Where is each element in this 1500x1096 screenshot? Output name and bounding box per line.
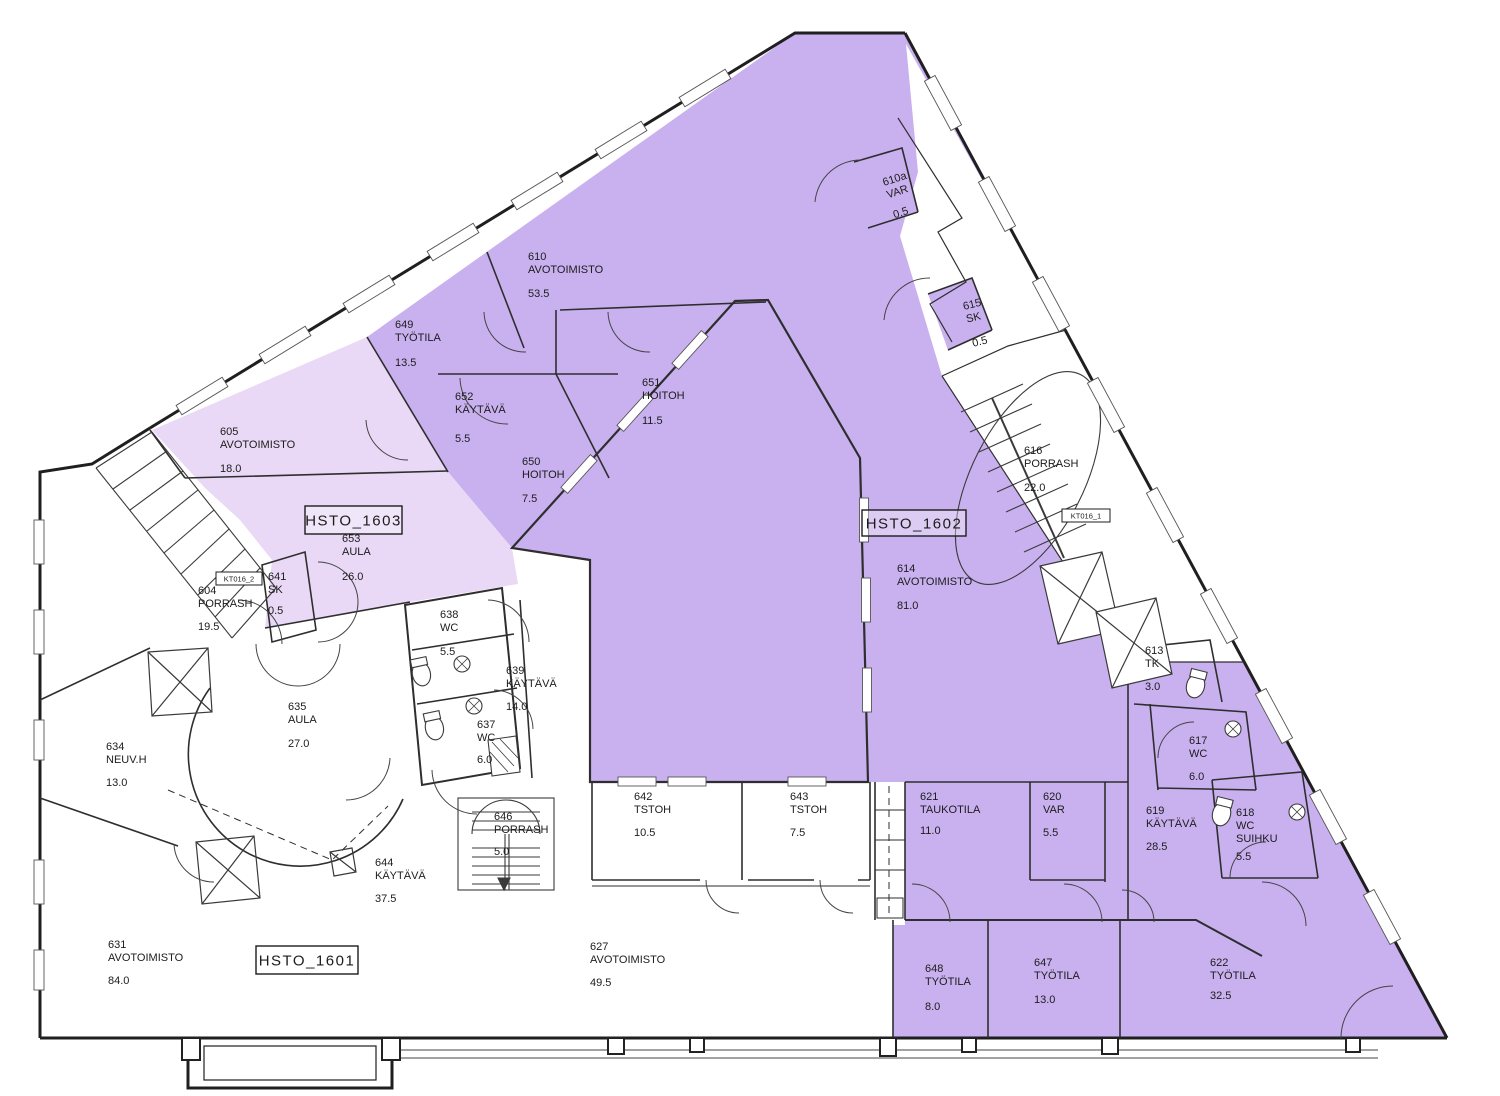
room-number: 618 bbox=[1236, 807, 1254, 819]
room-number: 648 bbox=[925, 963, 943, 975]
room-area: 5.5 bbox=[1043, 827, 1058, 839]
room-number: 635 bbox=[288, 701, 306, 713]
floor-plan-page: 610aVAR0.5610AVOTOIMISTO53.5649TYÖTILA13… bbox=[0, 0, 1500, 1096]
toilet-icon bbox=[422, 710, 445, 741]
room-number: 639 bbox=[506, 665, 524, 677]
room-name: WC bbox=[440, 622, 458, 634]
zone-tag-hsto_1602: HSTO_1602 bbox=[862, 510, 966, 536]
room-area: 5.0 bbox=[494, 846, 509, 858]
room-name: KÄYTÄVÄ bbox=[375, 870, 426, 882]
room-name: TSTOH bbox=[790, 804, 827, 816]
room-number: 638 bbox=[440, 609, 458, 621]
room-label-639: 639KÄYTÄVÄ14.0 bbox=[506, 665, 557, 713]
room-area: 3.0 bbox=[1145, 681, 1160, 693]
room-area: 11.0 bbox=[920, 825, 941, 837]
room-area: 7.5 bbox=[790, 827, 805, 839]
sink-icon bbox=[1225, 721, 1241, 737]
room-name: VAR bbox=[1043, 804, 1065, 816]
room-area: 32.5 bbox=[1210, 990, 1231, 1002]
room-name: NEUV.H bbox=[106, 754, 147, 766]
room-area: 7.5 bbox=[522, 493, 537, 505]
room-number: 652 bbox=[455, 391, 473, 403]
room-number: 620 bbox=[1043, 791, 1061, 803]
room-name: PORRASH bbox=[198, 598, 252, 610]
room-name: WC bbox=[1189, 748, 1207, 760]
room-area: 5.5 bbox=[1236, 851, 1251, 863]
zone-tag-label: HSTO_1601 bbox=[259, 953, 356, 970]
room-label-643: 643TSTOH7.5 bbox=[790, 791, 827, 839]
sink-icon bbox=[454, 656, 470, 672]
ref-tag-kt016_1: KT016_1 bbox=[1062, 509, 1110, 522]
room-name: AVOTOIMISTO bbox=[897, 576, 973, 588]
room-area: 13.0 bbox=[106, 777, 127, 789]
bottom-sill bbox=[182, 1038, 1378, 1060]
room-area: 11.5 bbox=[642, 415, 663, 427]
room-number: 605 bbox=[220, 426, 238, 438]
sink-icon bbox=[466, 698, 482, 714]
room-label-634: 634NEUV.H13.0 bbox=[106, 741, 147, 789]
room-name: TK bbox=[1145, 658, 1160, 670]
zone-tag-hsto_1601: HSTO_1601 bbox=[256, 946, 358, 974]
room-number: 614 bbox=[897, 563, 915, 575]
room-area: 18.0 bbox=[220, 463, 241, 475]
room-area: 5.5 bbox=[455, 433, 470, 445]
room-number: 619 bbox=[1146, 805, 1164, 817]
room-number: 643 bbox=[790, 791, 808, 803]
room-number: 616 bbox=[1024, 445, 1042, 457]
room-name: AULA bbox=[342, 546, 371, 558]
room-name: TYÖTILA bbox=[395, 332, 442, 344]
room-area: 6.0 bbox=[1189, 771, 1204, 783]
room-name: PORRASH bbox=[494, 824, 548, 836]
ref-tag-label: KT016_1 bbox=[1071, 512, 1101, 521]
room-name: AVOTOIMISTO bbox=[528, 264, 604, 276]
room-name: KÄYTÄVÄ bbox=[1146, 818, 1197, 830]
room-number: 646 bbox=[494, 811, 512, 823]
room-name: WC bbox=[477, 732, 495, 744]
zone-tag-label: HSTO_1603 bbox=[305, 513, 402, 530]
room-label-631: 631AVOTOIMISTO84.0 bbox=[108, 939, 184, 987]
room-area: 28.5 bbox=[1146, 841, 1167, 853]
room-number: 651 bbox=[642, 377, 660, 389]
room-area: 13.0 bbox=[1034, 994, 1055, 1006]
room-name: AULA bbox=[288, 714, 317, 726]
room-number: 649 bbox=[395, 319, 413, 331]
room-name: KÄYTÄVÄ bbox=[506, 678, 557, 690]
room-name: TAUKOTILA bbox=[920, 804, 981, 816]
room-name: TSTOH bbox=[634, 804, 671, 816]
room-number: 622 bbox=[1210, 957, 1228, 969]
room-area: 26.0 bbox=[342, 571, 363, 583]
room-area: 13.5 bbox=[395, 357, 416, 369]
room-number: 631 bbox=[108, 939, 126, 951]
room-label-635: 635AULA27.0 bbox=[288, 701, 317, 750]
room-number: 634 bbox=[106, 741, 124, 753]
room-name: PORRASH bbox=[1024, 458, 1078, 470]
room-number: 613 bbox=[1145, 645, 1163, 657]
room-name: SK bbox=[268, 584, 283, 596]
room-number: 647 bbox=[1034, 957, 1052, 969]
room-number: 642 bbox=[634, 791, 652, 803]
room-name: WC bbox=[1236, 820, 1254, 832]
room-number: 637 bbox=[477, 719, 495, 731]
room-area: 6.0 bbox=[477, 754, 492, 766]
room-name: TYÖTILA bbox=[1034, 970, 1081, 982]
room-label-642: 642TSTOH10.5 bbox=[634, 791, 671, 839]
room-number: 604 bbox=[198, 585, 216, 597]
room-label-638: 638WC5.5 bbox=[440, 609, 458, 658]
room-area: 81.0 bbox=[897, 600, 918, 612]
ref-tag-kt016_2: KT016_2 bbox=[216, 572, 262, 585]
room-name: AVOTOIMISTO bbox=[590, 954, 666, 966]
zone-tag-hsto_1603: HSTO_1603 bbox=[305, 506, 402, 534]
room-label-627: 627AVOTOIMISTO49.5 bbox=[590, 941, 666, 989]
zone-tag-label: HSTO_1602 bbox=[866, 516, 963, 533]
ref-tag-label: KT016_2 bbox=[224, 575, 254, 584]
room-name: HOITOH bbox=[522, 469, 565, 481]
room-name: SUIHKU bbox=[1236, 833, 1278, 845]
room-area: 84.0 bbox=[108, 975, 129, 987]
sink-icon bbox=[1289, 804, 1305, 820]
room-area: 0.5 bbox=[268, 605, 283, 617]
shaft-boxes bbox=[148, 648, 356, 904]
room-label-604: 604PORRASH19.5 bbox=[198, 585, 252, 633]
room-number: 641 bbox=[268, 571, 286, 583]
room-area: 49.5 bbox=[590, 977, 611, 989]
room-number: 653 bbox=[342, 533, 360, 545]
room-number: 621 bbox=[920, 791, 938, 803]
room-name: AVOTOIMISTO bbox=[108, 952, 184, 964]
room-label-646: 646PORRASH5.0 bbox=[494, 811, 548, 858]
room-number: 617 bbox=[1189, 735, 1207, 747]
room-label-644: 644KÄYTÄVÄ37.5 bbox=[375, 857, 426, 905]
room-number: 627 bbox=[590, 941, 608, 953]
room-name: HOITOH bbox=[642, 390, 685, 402]
room-number: 650 bbox=[522, 456, 540, 468]
room-area: 5.5 bbox=[440, 646, 455, 658]
room-name: KÄYTÄVÄ bbox=[455, 404, 506, 416]
room-name: AVOTOIMISTO bbox=[220, 439, 296, 451]
room-area: 27.0 bbox=[288, 738, 309, 750]
room-number: 644 bbox=[375, 857, 393, 869]
room-area: 10.5 bbox=[634, 827, 655, 839]
room-area: 14.0 bbox=[506, 701, 527, 713]
room-area: 8.0 bbox=[925, 1001, 940, 1013]
room-area: 53.5 bbox=[528, 288, 549, 300]
floor-plan-canvas: 610aVAR0.5610AVOTOIMISTO53.5649TYÖTILA13… bbox=[0, 0, 1500, 1096]
room-name: TYÖTILA bbox=[1210, 970, 1257, 982]
room-name: TYÖTILA bbox=[925, 976, 972, 988]
room-area: 37.5 bbox=[375, 893, 396, 905]
room-number: 610 bbox=[528, 251, 546, 263]
room-area: 19.5 bbox=[198, 621, 219, 633]
room-area: 22.0 bbox=[1024, 482, 1045, 494]
